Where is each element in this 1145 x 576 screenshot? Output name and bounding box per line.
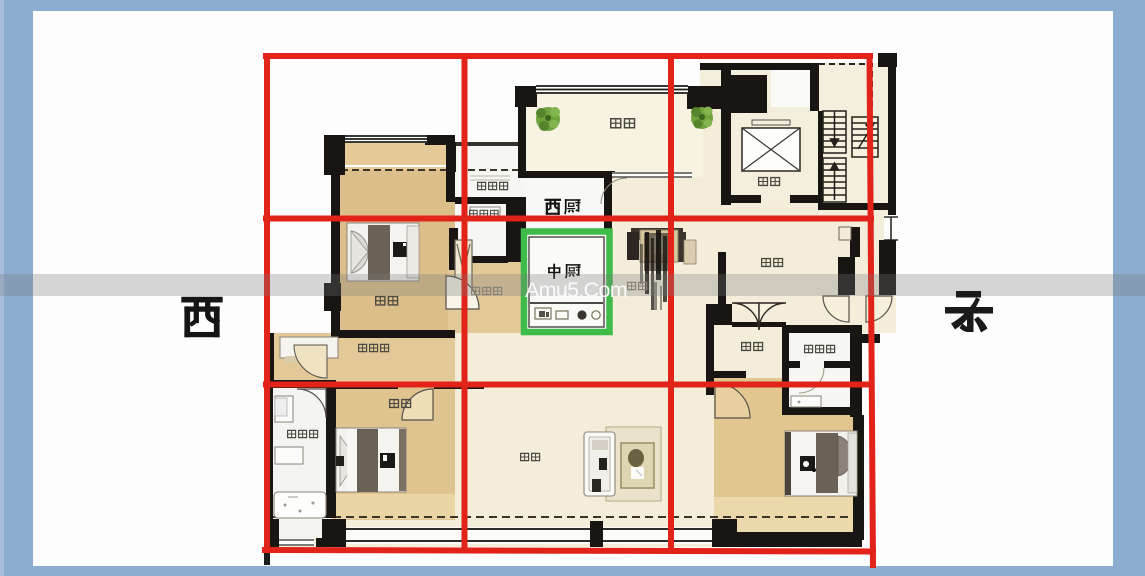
svg-text:Amu5.Com: Amu5.Com — [525, 278, 627, 302]
